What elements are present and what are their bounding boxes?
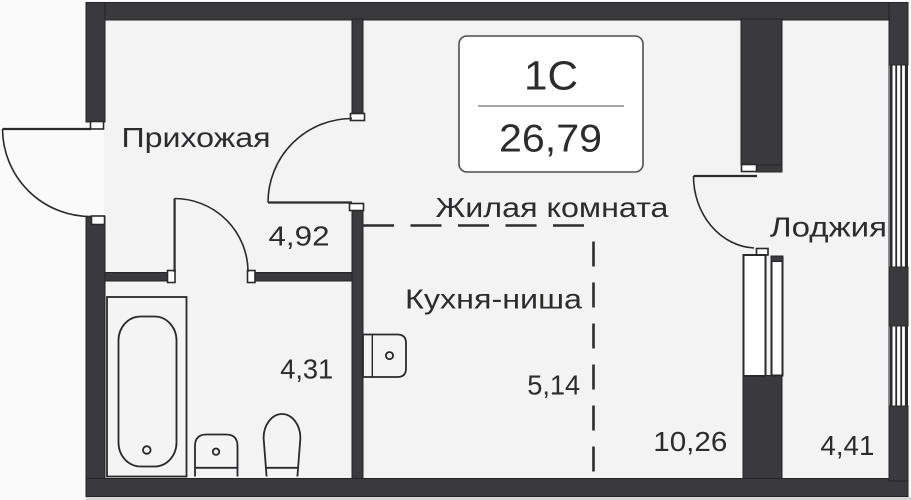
- svg-text:4,92: 4,92: [269, 221, 330, 252]
- svg-text:1С: 1С: [524, 53, 578, 99]
- svg-text:5,14: 5,14: [527, 370, 580, 401]
- svg-text:10,26: 10,26: [653, 426, 727, 457]
- svg-text:Жилая комната: Жилая комната: [436, 192, 669, 223]
- svg-text:Прихожая: Прихожая: [122, 122, 271, 153]
- svg-text:26,79: 26,79: [499, 118, 602, 161]
- svg-text:4,41: 4,41: [820, 430, 874, 461]
- svg-text:Кухня-ниша: Кухня-ниша: [405, 284, 582, 315]
- svg-text:4,31: 4,31: [280, 354, 333, 385]
- svg-text:Лоджия: Лоджия: [770, 212, 887, 243]
